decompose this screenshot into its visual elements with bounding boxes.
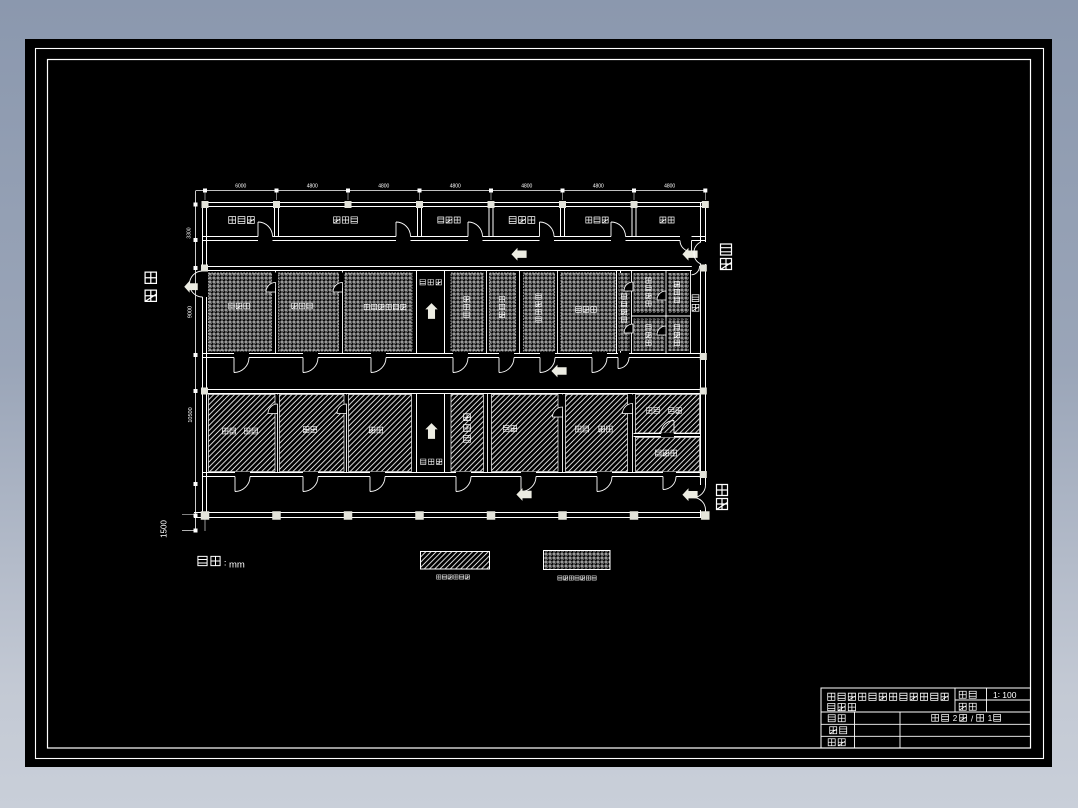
svg-text:1500: 1500 [160,520,169,538]
svg-text:1: 1 [988,714,993,723]
svg-text:4800: 4800 [593,184,604,190]
svg-text:6000: 6000 [235,184,246,190]
svg-text:1∶ 100: 1∶ 100 [993,690,1017,700]
svg-text:mm: mm [229,560,245,571]
svg-text:9000: 9000 [188,306,194,318]
svg-text:4800: 4800 [378,184,389,190]
svg-text:∶: ∶ [224,559,226,569]
svg-text:10500: 10500 [188,407,194,422]
svg-text:2: 2 [953,714,958,723]
svg-text:4800: 4800 [450,184,461,190]
svg-text:4800: 4800 [307,184,318,190]
svg-text:4800: 4800 [664,184,675,190]
svg-text:3300: 3300 [187,227,193,238]
svg-text:4800: 4800 [521,184,532,190]
